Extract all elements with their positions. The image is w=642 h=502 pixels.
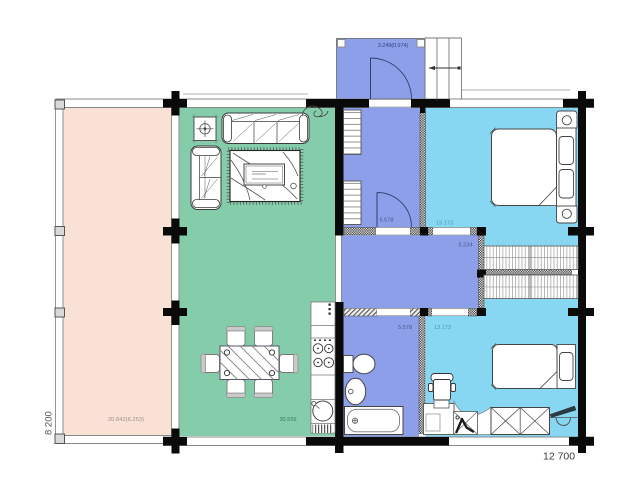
svg-text:5.578: 5.578 (398, 325, 412, 331)
svg-text:12 700: 12 700 (543, 451, 575, 463)
svg-text:5.578: 5.578 (380, 218, 394, 224)
svg-text:8 200: 8 200 (44, 411, 55, 435)
svg-text:30.559: 30.559 (279, 417, 296, 423)
svg-text:13.173: 13.173 (434, 325, 451, 331)
svg-text:3.249(0.974): 3.249(0.974) (378, 43, 409, 49)
svg-text:5.234: 5.234 (459, 243, 473, 249)
svg-text:13.173: 13.173 (436, 221, 453, 227)
svg-text:20.842(6.253): 20.842(6.253) (108, 417, 144, 423)
